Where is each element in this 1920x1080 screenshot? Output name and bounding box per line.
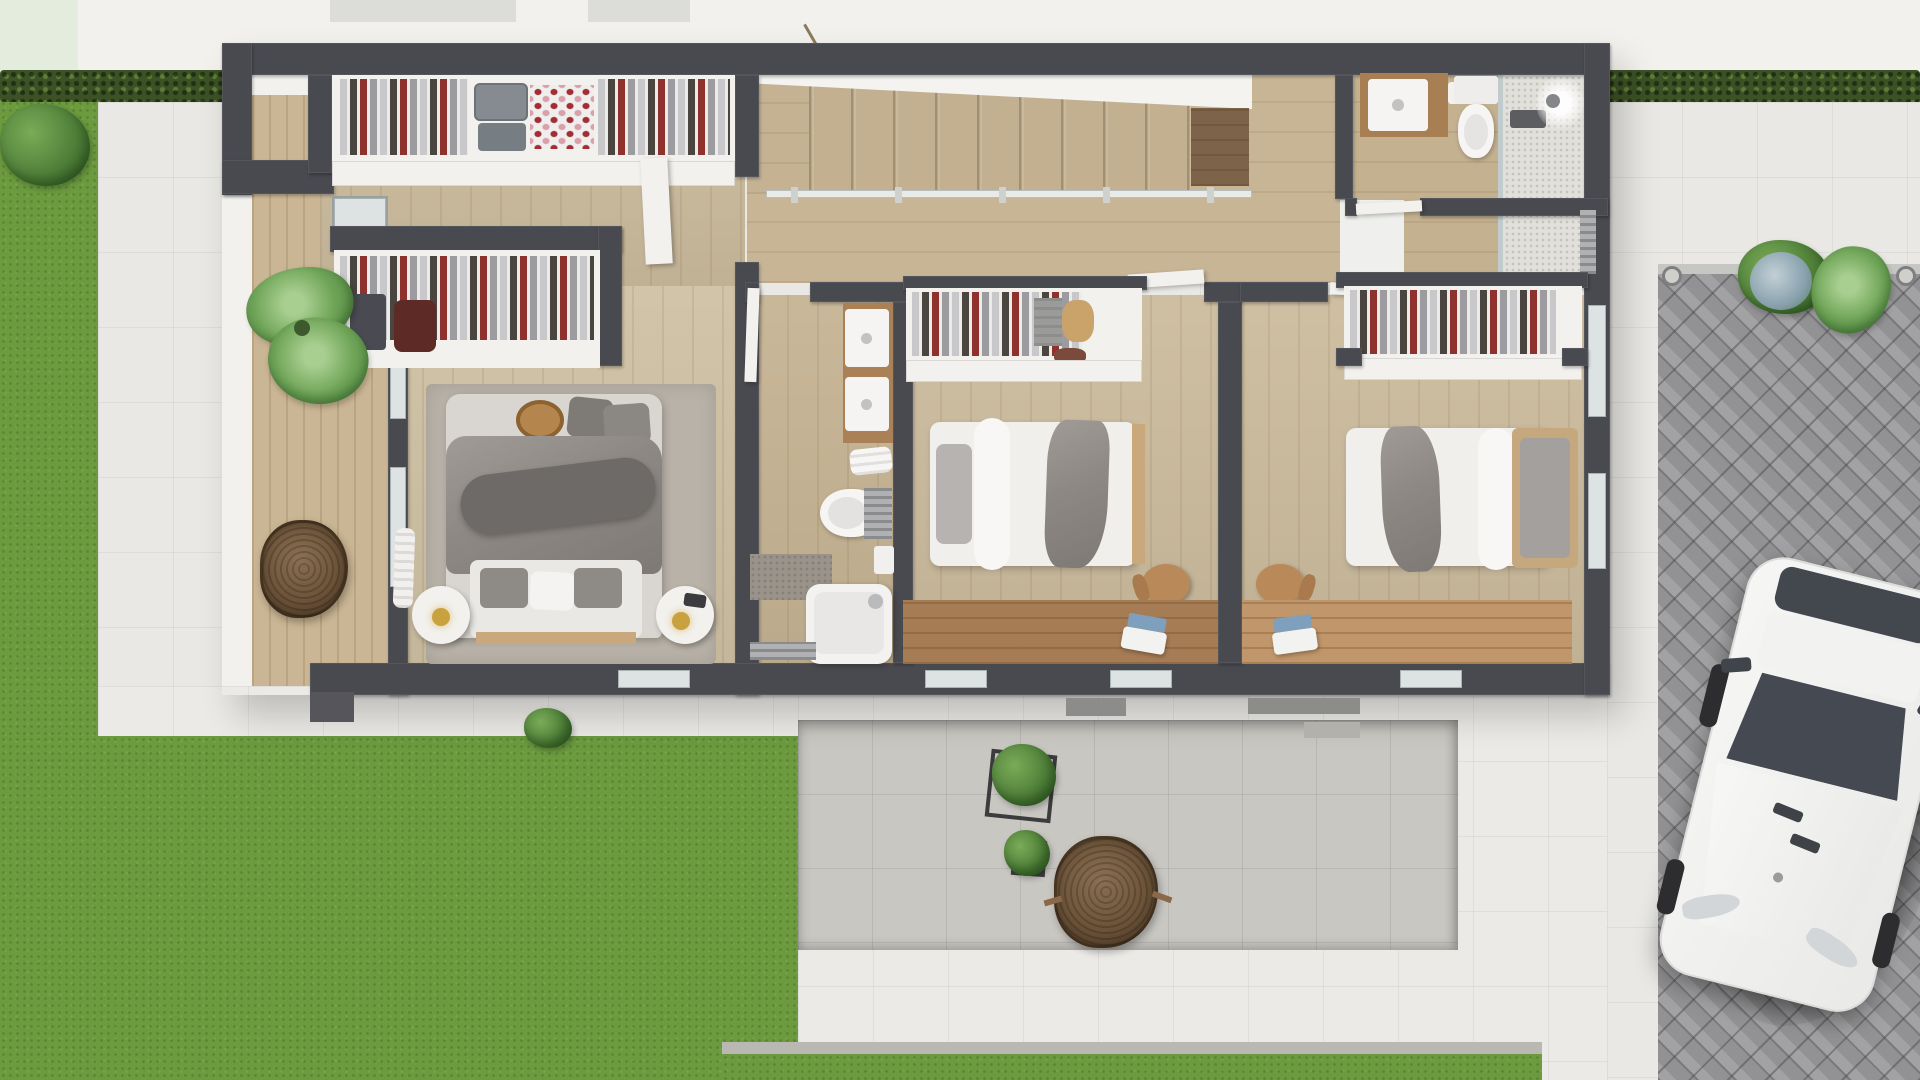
bath-towel: [849, 446, 893, 476]
bottom-window-1: [618, 670, 690, 688]
niche-shelf-front: [1344, 358, 1582, 380]
patio-planter-small: [1004, 830, 1054, 882]
bedroom3-desk: [1242, 600, 1572, 664]
wall-bottom: [310, 663, 1608, 695]
shower-head: [1546, 94, 1560, 108]
bolster-pillow: [974, 418, 1010, 570]
bedroom2-wardrobe-niche: [903, 276, 1147, 382]
bedroom2-desk: [903, 600, 1218, 664]
bathroom-vanity: [843, 303, 893, 443]
bedroom3-chair: [1248, 558, 1312, 606]
wall-closet-left: [308, 75, 332, 173]
porch-step: [310, 692, 354, 722]
closet-door-leaf: [640, 157, 673, 264]
laptop: [1269, 611, 1322, 657]
hedge-top-right: [1607, 70, 1920, 104]
headboard-pad: [1520, 438, 1570, 558]
railing-post-1: [791, 187, 798, 203]
shower-bath-vanity: [1360, 73, 1448, 137]
bedroom2-bed: [926, 418, 1148, 570]
wall-shower-bath-left: [1335, 75, 1353, 199]
patio-planter-large: [986, 744, 1064, 826]
greenhouse-roof-corner: [0, 0, 78, 74]
wall-wardrobe2-top: [330, 226, 622, 252]
sink-bottom: [845, 377, 889, 431]
right-window-glass-2: [1588, 473, 1606, 569]
railing-post-5: [1207, 187, 1214, 203]
wall-bedroom2-door-seg: [1204, 282, 1242, 302]
phone-on-table: [683, 593, 707, 609]
lamp-gold-right: [672, 612, 690, 630]
railing-post-4: [1103, 187, 1110, 203]
patio-step: [1304, 722, 1360, 738]
nightstand-right: [656, 586, 714, 644]
bollard-light-left: [1662, 266, 1682, 286]
bottom-window-2: [925, 670, 987, 688]
pillow-gray: [936, 444, 972, 544]
grass-strip-bottom: [722, 1054, 1542, 1080]
patio-door-mat-2: [1248, 698, 1360, 714]
sink-drain: [1392, 99, 1404, 111]
niche-shelf-front: [906, 360, 1142, 382]
footboard-wood: [1132, 424, 1145, 564]
hedge-top-left: [0, 70, 226, 102]
driveway-plant-flowers: [1750, 252, 1812, 310]
toilet-tank: [1454, 76, 1498, 104]
bottom-window-3: [1110, 670, 1172, 688]
roof-panel-1: [330, 0, 516, 22]
railing-post-3: [999, 187, 1006, 203]
sink: [1368, 79, 1428, 131]
laptop: [1120, 610, 1174, 658]
wall-suite-right-upper: [735, 75, 759, 177]
palm-center: [294, 320, 310, 336]
garden-bush-left: [0, 104, 90, 186]
wall-bedroom3-top-left: [1240, 282, 1328, 302]
bedroom3-wardrobe-niche: [1336, 272, 1588, 382]
shower-head-mist: [1536, 76, 1584, 130]
suitcase-large: [474, 83, 528, 121]
suitcase-small: [478, 123, 526, 151]
wardrobe-shelf-front: [332, 161, 735, 186]
chair-seat: [1256, 564, 1304, 604]
bolster-pillow: [1478, 428, 1514, 570]
stairs-glass-railing: [766, 190, 1252, 198]
round-tray: [1062, 300, 1094, 342]
hanging-clothes-right: [598, 79, 730, 155]
folded-textiles: [1034, 298, 1062, 346]
toilet-seat: [828, 497, 866, 529]
hanging-clothes: [1350, 290, 1556, 354]
patio-door-mat-1: [1066, 698, 1126, 716]
niche-stub-left: [1336, 348, 1362, 366]
shower-bath-toilet: [1452, 76, 1500, 160]
storage-basket: [516, 400, 564, 440]
bench-cushion-left: [480, 568, 528, 608]
stairs-upper-landing-dark: [1191, 108, 1249, 186]
floor-plan-scene: [0, 0, 1920, 1080]
master-bed: [446, 394, 666, 644]
bench-pillow-white: [529, 571, 575, 611]
hanging-clothes-left: [340, 79, 468, 155]
bedroom3-bed: [1344, 426, 1580, 572]
toilet-seat: [1464, 114, 1488, 150]
red-coat: [394, 300, 436, 352]
planter-foliage: [1004, 830, 1050, 876]
knit-throw-ladder: [393, 528, 416, 609]
white-roof-right: [1607, 0, 1920, 72]
right-window-glass-1: [1588, 305, 1606, 417]
bush-on-walkway: [524, 708, 572, 748]
sink-drain: [861, 333, 872, 344]
shoe-rack: [530, 85, 594, 149]
master-wardrobe: [334, 250, 600, 368]
bench-cushion-right: [574, 568, 622, 608]
bathtub: [806, 584, 892, 664]
wall-bathroom-top: [810, 282, 914, 302]
terrace-palm-plant: [242, 262, 372, 412]
bed-base-wood: [476, 632, 636, 644]
soap-dispenser: [874, 546, 894, 574]
sink-top: [845, 309, 889, 367]
lamp-gold-left: [432, 608, 450, 626]
toilet-shelf-towels: [864, 487, 892, 539]
grass-lawn-bottom-left: [0, 736, 800, 1080]
bedroom2-chair: [1134, 558, 1198, 606]
bath-faucet: [868, 594, 883, 609]
bollard-light-right: [1896, 266, 1916, 286]
wall-bedroom2-3-divider: [1218, 302, 1242, 663]
sink-drain: [861, 399, 872, 410]
bottom-window-4: [1400, 670, 1462, 688]
towel-radiator: [1580, 210, 1596, 274]
wall-top: [222, 43, 1608, 75]
nightstand-left: [412, 586, 470, 644]
towel-rail: [750, 642, 816, 660]
railing-post-2: [895, 187, 902, 203]
car-mirror-left: [1721, 657, 1752, 673]
white-roof-left: [78, 0, 224, 74]
niche-stub-right: [1562, 348, 1588, 366]
planter-foliage: [992, 744, 1056, 806]
roof-panel-2: [588, 0, 690, 22]
wall-wardrobe2-right: [598, 226, 622, 366]
closet-wardrobe-run: [332, 75, 735, 186]
wardrobe-shelf-front: [334, 354, 600, 368]
